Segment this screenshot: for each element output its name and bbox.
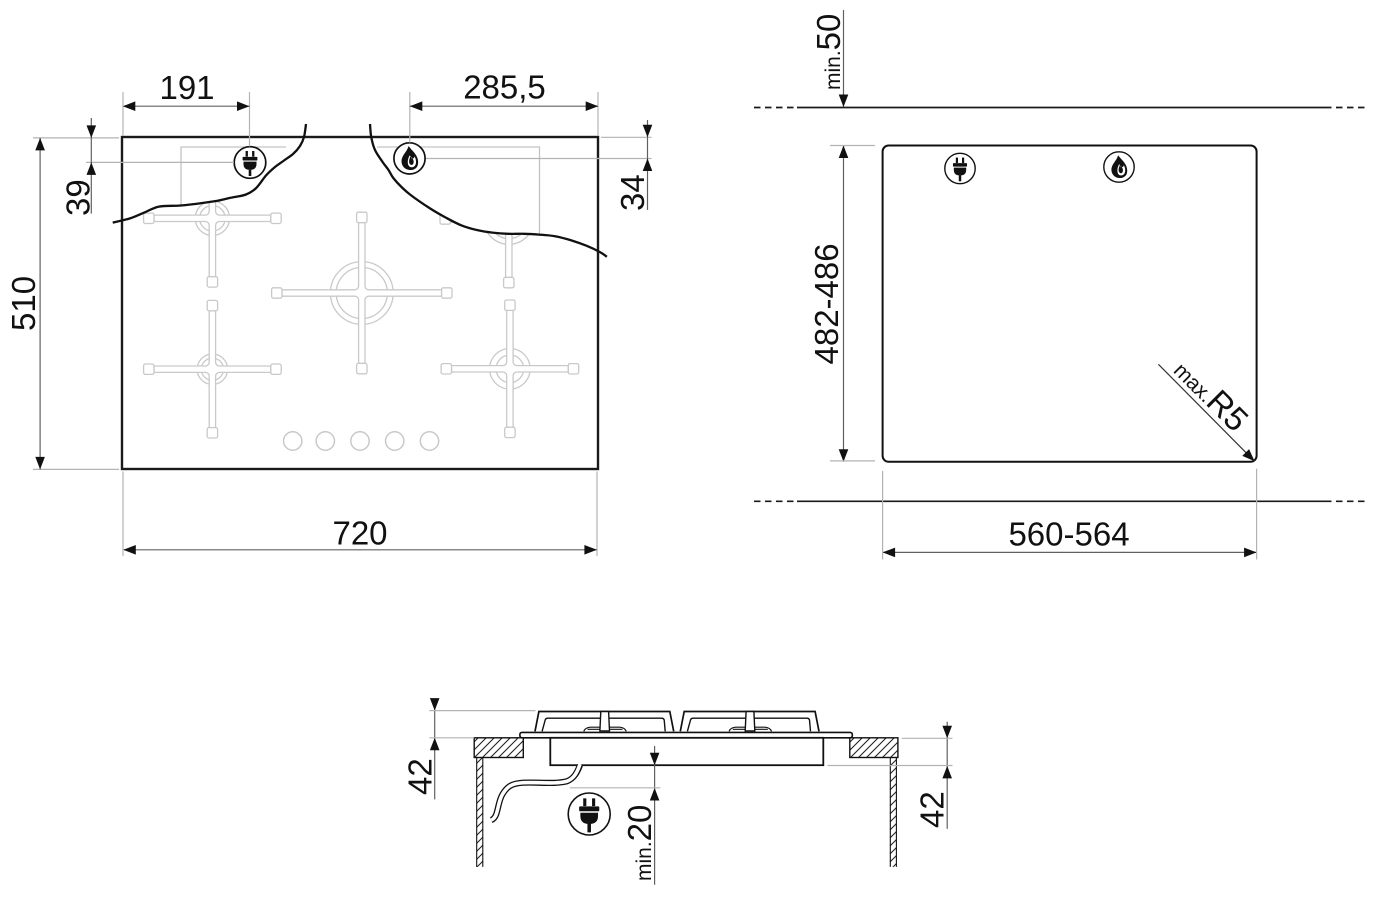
svg-text:720: 720 [332,515,387,552]
svg-text:39: 39 [60,179,97,216]
svg-text:510: 510 [5,276,42,331]
svg-text:191: 191 [159,69,214,106]
svg-text:34: 34 [614,174,651,211]
svg-text:482-486: 482-486 [808,243,845,364]
svg-text:560-564: 560-564 [1008,516,1129,553]
svg-text:285,5: 285,5 [463,69,546,106]
svg-text:42: 42 [914,791,951,828]
svg-text:42: 42 [402,758,439,795]
